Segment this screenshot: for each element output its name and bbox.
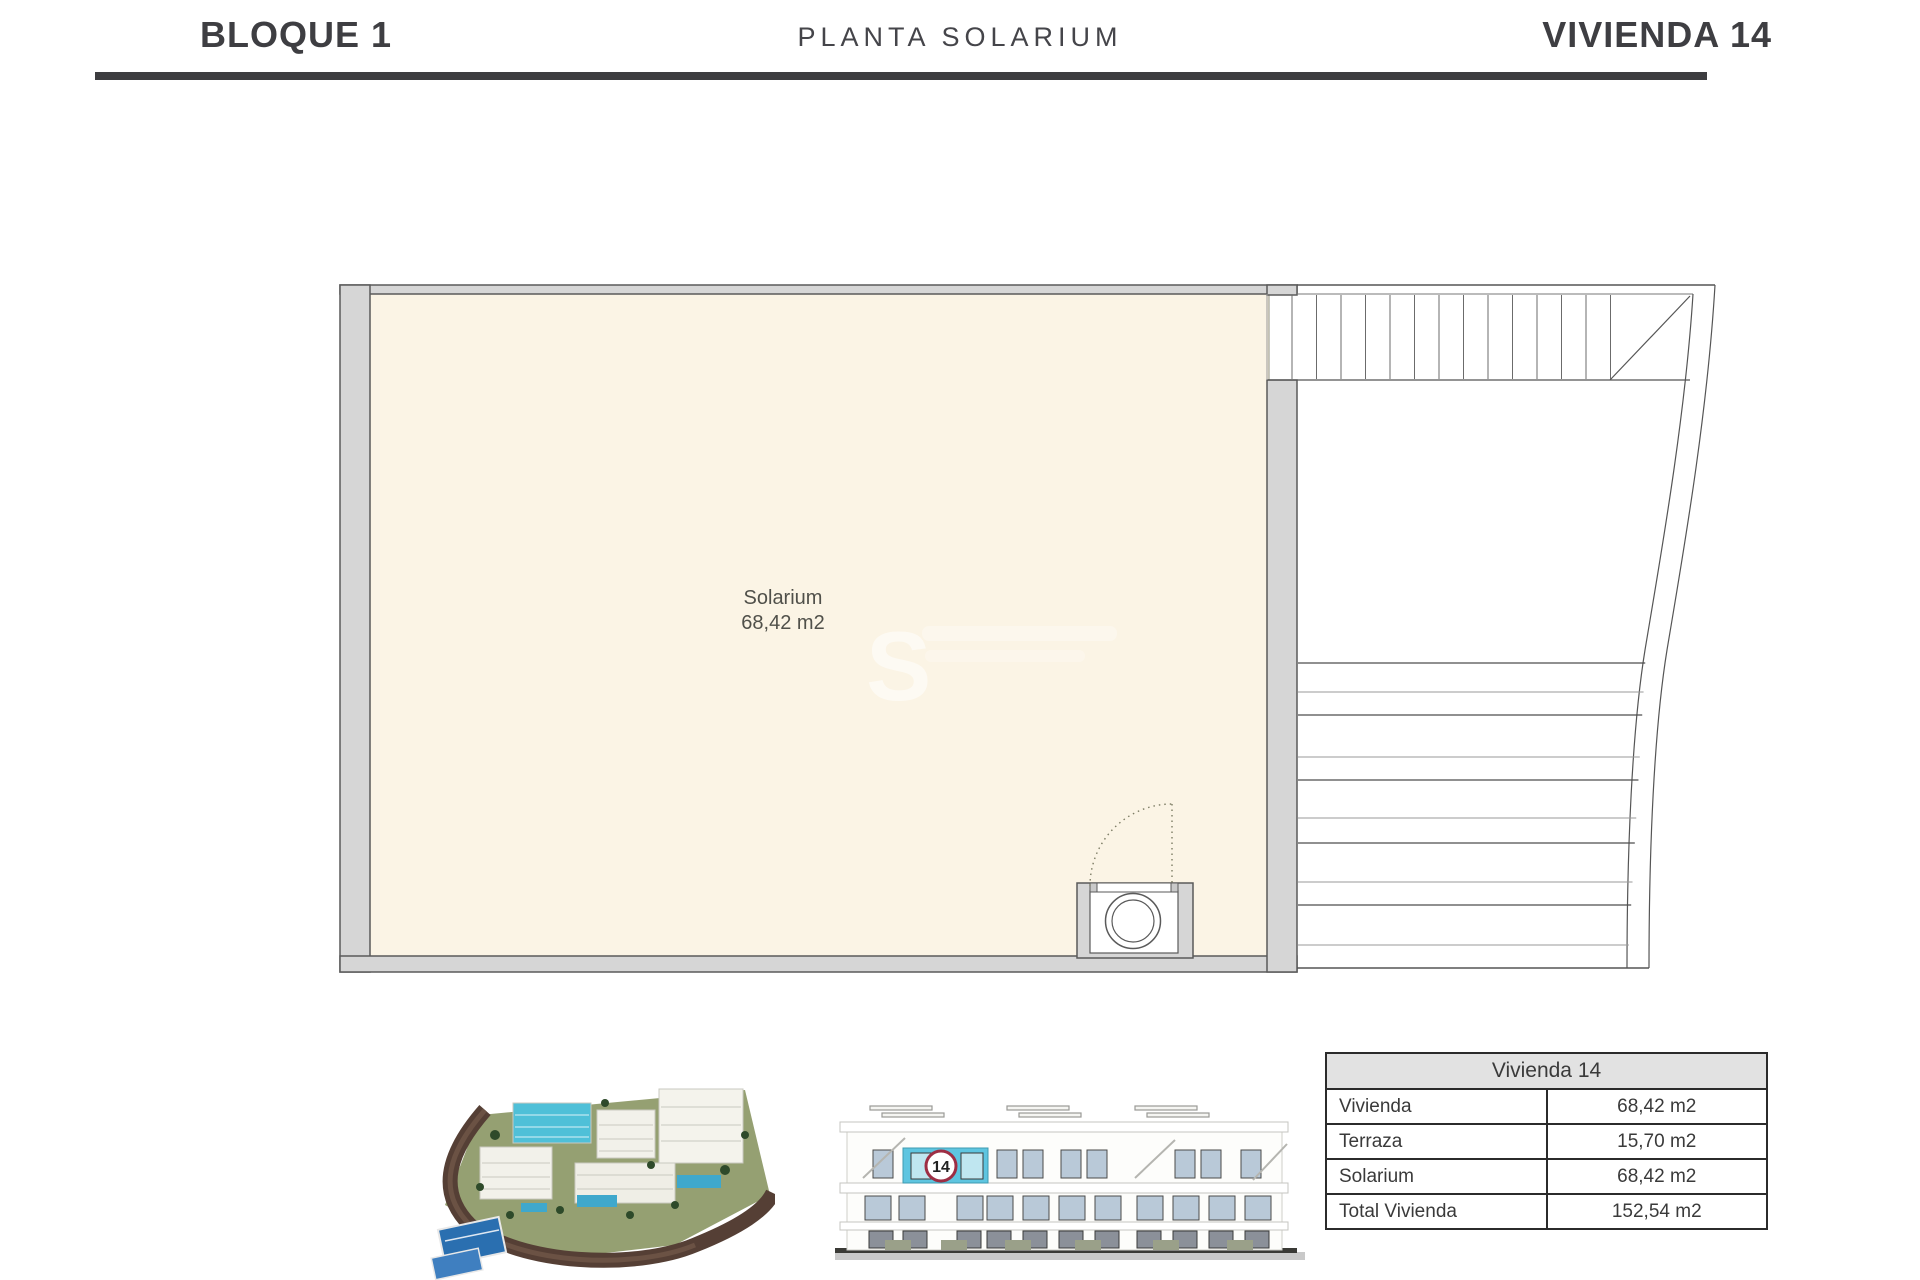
- watermark-line2: [925, 650, 1085, 662]
- highlighted-unit-window-2: [961, 1153, 983, 1179]
- slab-2: [840, 1222, 1288, 1230]
- summary-table-title: Vivienda 14: [1326, 1053, 1767, 1089]
- facade-window: [1137, 1196, 1163, 1220]
- facade-window: [1201, 1150, 1221, 1178]
- pool-2: [677, 1175, 721, 1188]
- facade-window: [1059, 1196, 1085, 1220]
- wall-top: [340, 285, 1297, 294]
- table-row: Total Vivienda 152,54 m2: [1326, 1194, 1767, 1229]
- facade-window: [1227, 1240, 1253, 1250]
- watermark-letter: S: [866, 611, 931, 721]
- skylight-circle-outer: [1106, 894, 1161, 949]
- building-4: [480, 1147, 552, 1199]
- wall-right-top-corner: [1267, 285, 1297, 295]
- facade-window: [865, 1196, 891, 1220]
- pool-1: [577, 1195, 617, 1207]
- facade-window: [1153, 1240, 1179, 1250]
- facade-window: [1023, 1150, 1043, 1178]
- row-value: 68,42 m2: [1547, 1089, 1768, 1124]
- staircase: [1267, 285, 1715, 968]
- building-3: [659, 1089, 743, 1163]
- facade-window: [1095, 1196, 1121, 1220]
- plan-sheet: BLOQUE 1 PLANTA SOLARIUM VIVIENDA 14: [0, 0, 1920, 1280]
- row-label: Vivienda: [1326, 1089, 1547, 1124]
- ground-shadow: [835, 1252, 1305, 1260]
- pool-3: [521, 1203, 547, 1212]
- facade-window: [1209, 1196, 1235, 1220]
- stair-treads: [1292, 295, 1645, 945]
- facade-window: [941, 1240, 967, 1250]
- facade-window: [899, 1196, 925, 1220]
- facade-window: [1087, 1150, 1107, 1178]
- roof-pergolas: [870, 1106, 1209, 1117]
- slab-1: [840, 1183, 1288, 1193]
- facade-window: [885, 1240, 911, 1250]
- wall-right: [1267, 380, 1297, 972]
- table-row: Vivienda 68,42 m2: [1326, 1089, 1767, 1124]
- table-row: Terraza 15,70 m2: [1326, 1124, 1767, 1159]
- aerial-render: [425, 1075, 775, 1280]
- row-value: 68,42 m2: [1547, 1159, 1768, 1194]
- hatch-jamb-right: [1171, 883, 1178, 892]
- hatch-jamb-left: [1090, 883, 1097, 892]
- unit-badge: 14: [926, 1151, 956, 1181]
- wall-left: [340, 285, 370, 972]
- row-label: Total Vivienda: [1326, 1194, 1547, 1229]
- summary-table: Vivienda 14 Vivienda 68,42 m2 Terraza 15…: [1325, 1052, 1768, 1230]
- facade-window: [1173, 1196, 1199, 1220]
- facade-window: [987, 1196, 1013, 1220]
- table-row: Solarium 68,42 m2: [1326, 1159, 1767, 1194]
- row-label: Solarium: [1326, 1159, 1547, 1194]
- room-area-label: 68,42 m2: [741, 612, 824, 634]
- building-elevation: 14: [835, 1100, 1310, 1265]
- facade-window: [957, 1196, 983, 1220]
- stair-break-diagonal: [1610, 296, 1690, 380]
- roof-slab: [840, 1122, 1288, 1132]
- facade-window: [997, 1150, 1017, 1178]
- curved-wall-inner: [1627, 294, 1693, 968]
- facade-window: [1245, 1196, 1271, 1220]
- unit-badge-number: 14: [932, 1159, 950, 1176]
- facade-window: [1061, 1150, 1081, 1178]
- facade-window: [1175, 1150, 1195, 1178]
- facade-window: [1023, 1196, 1049, 1220]
- facade-window: [873, 1150, 893, 1178]
- room-label: Solarium: [744, 587, 823, 609]
- hatch-door-leaf: [1092, 883, 1176, 892]
- watermark-line1: [922, 626, 1117, 641]
- row-label: Terraza: [1326, 1124, 1547, 1159]
- row-value: 152,54 m2: [1547, 1194, 1768, 1229]
- row-value: 15,70 m2: [1547, 1124, 1768, 1159]
- curved-wall-outer: [1649, 285, 1715, 968]
- facade-window: [1075, 1240, 1101, 1250]
- facade-window: [1005, 1240, 1031, 1250]
